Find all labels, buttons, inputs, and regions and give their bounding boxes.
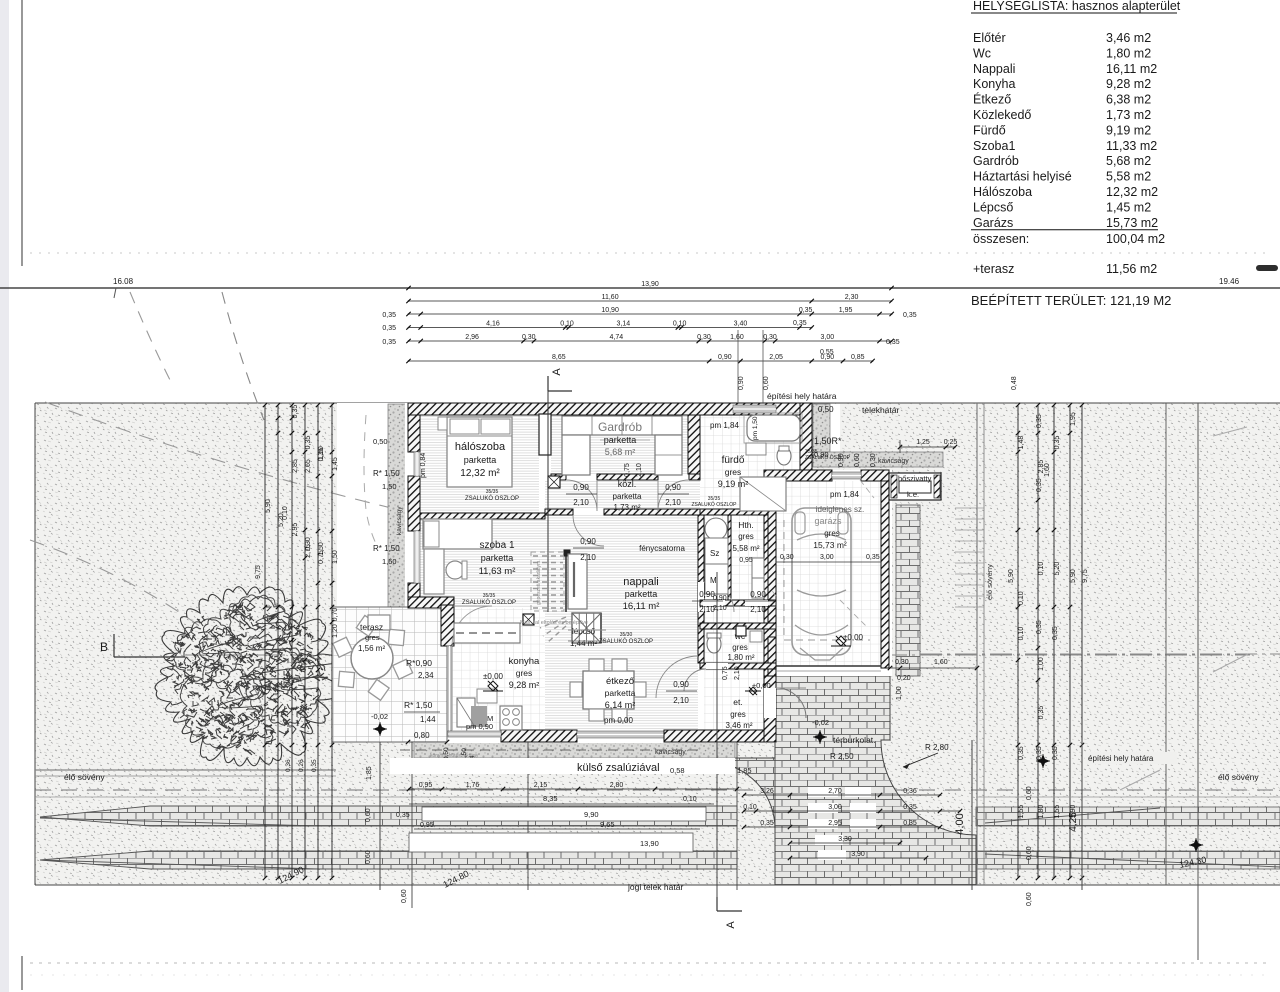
svg-text:kavicságy: kavicságy xyxy=(878,458,909,465)
svg-text:élő sövény: élő sövény xyxy=(1218,772,1259,782)
svg-text:5,90: 5,90 xyxy=(1070,569,1077,583)
svg-text:0,35: 0,35 xyxy=(1052,746,1059,760)
svg-text:fénycsatorna: fénycsatorna xyxy=(639,544,685,553)
svg-text:k.e.: k.e. xyxy=(907,490,919,499)
svg-text:parketta: parketta xyxy=(481,553,514,563)
svg-text:Fürdő: Fürdő xyxy=(973,123,1006,137)
svg-text:2,95: 2,95 xyxy=(828,820,842,827)
svg-text:parketta: parketta xyxy=(464,455,497,465)
svg-text:R* 1,50: R* 1,50 xyxy=(373,544,400,553)
svg-text:0,95: 0,95 xyxy=(739,557,753,564)
svg-text:0,10: 0,10 xyxy=(1018,591,1025,605)
svg-text:2,10: 2,10 xyxy=(713,605,727,612)
svg-text:0,35: 0,35 xyxy=(799,307,813,314)
svg-text:4,74: 4,74 xyxy=(610,334,624,341)
svg-text:3,26: 3,26 xyxy=(760,788,774,795)
svg-text:2,95: 2,95 xyxy=(292,523,299,537)
svg-text:2,10: 2,10 xyxy=(673,696,689,705)
svg-text:11,60: 11,60 xyxy=(602,294,619,301)
svg-text:1,56 m²: 1,56 m² xyxy=(358,644,385,653)
svg-text:0,90: 0,90 xyxy=(580,537,596,546)
svg-text:0,60: 0,60 xyxy=(763,376,770,390)
svg-text:0,75: 0,75 xyxy=(722,666,729,680)
svg-text:0,30: 0,30 xyxy=(697,334,711,341)
svg-text:étkező: étkező xyxy=(606,676,634,687)
svg-text:0,10: 0,10 xyxy=(282,506,289,520)
svg-text:1,73 m²: 1,73 m² xyxy=(613,503,640,512)
svg-text:0,60: 0,60 xyxy=(1026,786,1033,800)
svg-text:gres: gres xyxy=(824,529,840,538)
svg-text:2,10: 2,10 xyxy=(734,666,741,680)
svg-text:0,90: 0,90 xyxy=(718,354,732,361)
svg-text:8,35: 8,35 xyxy=(543,794,558,803)
svg-text:Háztartási helyisé: Háztartási helyisé xyxy=(973,170,1072,184)
svg-text:jogi telek határ: jogi telek határ xyxy=(627,882,683,892)
svg-text:A: A xyxy=(551,368,563,376)
svg-text:kavicságy: kavicságy xyxy=(396,506,403,535)
svg-text:0,90: 0,90 xyxy=(665,483,681,492)
svg-text:pm 1,50: pm 1,50 xyxy=(752,416,759,440)
svg-text:0,30: 0,30 xyxy=(870,453,877,467)
svg-text:2,10: 2,10 xyxy=(750,605,766,614)
svg-text:2,85: 2,85 xyxy=(292,459,299,473)
svg-text:2,10: 2,10 xyxy=(665,498,681,507)
svg-text:0,60: 0,60 xyxy=(1026,892,1033,906)
svg-text:1,95: 1,95 xyxy=(1070,412,1077,426)
svg-text:1,76: 1,76 xyxy=(466,782,480,789)
svg-text:0,10: 0,10 xyxy=(673,321,687,328)
svg-text:0,10: 0,10 xyxy=(683,796,697,803)
svg-text:0,60: 0,60 xyxy=(854,453,861,467)
svg-text:BEÉPÍTETT TERÜLET: 121,19 M2: BEÉPÍTETT TERÜLET: 121,19 M2 xyxy=(971,293,1171,308)
svg-text:gépészeti/akadálym.: gépészeti/akadálym. xyxy=(536,559,542,605)
svg-text:2,30: 2,30 xyxy=(845,294,859,301)
svg-text:élő sövény: élő sövény xyxy=(985,564,994,600)
svg-text:0,48: 0,48 xyxy=(1011,376,1018,390)
svg-text:35/30: 35/30 xyxy=(620,632,633,638)
svg-text:2,70: 2,70 xyxy=(828,788,842,795)
svg-text:5,58 m²: 5,58 m² xyxy=(732,544,759,553)
svg-text:Konyha: Konyha xyxy=(973,77,1015,91)
svg-text:Wc: Wc xyxy=(973,46,991,60)
svg-text:0,10: 0,10 xyxy=(1018,627,1025,641)
svg-text:0,60: 0,60 xyxy=(401,889,408,903)
svg-text:9,28 m²: 9,28 m² xyxy=(509,680,540,690)
svg-text:nappali: nappali xyxy=(623,576,658,588)
svg-text:3,00: 3,00 xyxy=(820,554,834,561)
svg-text:4,00: 4,00 xyxy=(954,813,966,834)
svg-text:1,48: 1,48 xyxy=(1018,436,1025,450)
svg-text:0,60: 0,60 xyxy=(365,808,372,822)
svg-text:0,30: 0,30 xyxy=(522,334,536,341)
svg-text:1,00: 1,00 xyxy=(1038,657,1045,671)
svg-text:0,35: 0,35 xyxy=(793,320,807,327)
svg-text:0,90: 0,90 xyxy=(821,354,835,361)
svg-text:0,85: 0,85 xyxy=(851,354,865,361)
svg-text:1,45 m2: 1,45 m2 xyxy=(1106,200,1151,214)
svg-text:pm 0,90: pm 0,90 xyxy=(466,722,493,731)
svg-text:0,35: 0,35 xyxy=(760,820,774,827)
svg-text:0,35: 0,35 xyxy=(1052,626,1059,640)
svg-text:2,34: 2,34 xyxy=(418,671,434,680)
svg-text:0,58: 0,58 xyxy=(670,766,685,775)
svg-text:HELYSÉGLISTA: hasznos alapter: HELYSÉGLISTA: hasznos alapterület xyxy=(973,0,1181,13)
svg-text:hőszivatty: hőszivatty xyxy=(898,474,932,483)
svg-text:4,16: 4,16 xyxy=(486,321,500,328)
svg-text:10,90: 10,90 xyxy=(601,307,619,314)
svg-text:9,75: 9,75 xyxy=(1082,569,1089,583)
svg-text:0,35: 0,35 xyxy=(903,820,917,827)
svg-text:et.: et. xyxy=(733,697,742,707)
svg-text:2,80: 2,80 xyxy=(610,782,624,789)
svg-text:100,04 m2: 100,04 m2 xyxy=(1106,232,1165,246)
svg-text:6,14 m²: 6,14 m² xyxy=(605,700,636,710)
svg-text:Előtér: Előtér xyxy=(973,31,1006,45)
svg-text:16,11 m²: 16,11 m² xyxy=(623,601,660,612)
svg-text:15,73 m²: 15,73 m² xyxy=(813,540,847,550)
svg-text:0,75: 0,75 xyxy=(624,463,631,477)
svg-text:5,20: 5,20 xyxy=(1054,562,1061,576)
svg-text:0,35: 0,35 xyxy=(1036,478,1043,492)
svg-text:0,95: 0,95 xyxy=(420,822,434,829)
svg-text:0,35: 0,35 xyxy=(866,554,880,561)
svg-text:9,19 m²: 9,19 m² xyxy=(718,479,749,489)
svg-text:5,68 m2: 5,68 m2 xyxy=(1106,154,1151,168)
svg-text:8,65: 8,65 xyxy=(552,354,566,361)
svg-text:Max. fal eltolás és belépővé: Max. fal eltolás és belépővé xyxy=(520,620,588,626)
svg-text:0,35: 0,35 xyxy=(292,405,299,419)
svg-text:0,35: 0,35 xyxy=(396,812,410,819)
svg-text:5,90: 5,90 xyxy=(1008,569,1015,583)
svg-text:Sz: Sz xyxy=(710,549,719,558)
svg-text:külső zsalúziával: külső zsalúziával xyxy=(577,762,660,774)
svg-text:gres: gres xyxy=(725,467,742,477)
svg-text:lépcső: lépcső xyxy=(572,627,596,636)
svg-text:0,30: 0,30 xyxy=(895,659,909,666)
svg-text:3,90: 3,90 xyxy=(851,851,865,858)
svg-text:0,20: 0,20 xyxy=(897,675,911,682)
svg-text:konyha: konyha xyxy=(509,656,540,667)
svg-text:0,80: 0,80 xyxy=(414,731,430,740)
svg-text:0,26: 0,26 xyxy=(298,759,305,772)
svg-text:gres: gres xyxy=(732,643,748,652)
svg-text:parketta: parketta xyxy=(605,688,636,698)
svg-text:R 2,50: R 2,50 xyxy=(830,752,854,761)
svg-text:0,35: 0,35 xyxy=(1036,620,1043,634)
svg-text:1,50: 1,50 xyxy=(318,542,325,556)
svg-text:összesen:: összesen: xyxy=(973,232,1029,246)
svg-text:16.08: 16.08 xyxy=(113,277,134,286)
svg-text:0,35: 0,35 xyxy=(903,312,917,319)
svg-text:fürdő: fürdő xyxy=(722,455,745,466)
svg-text:0,35: 0,35 xyxy=(305,436,312,450)
svg-text:0,10: 0,10 xyxy=(743,804,757,811)
svg-text:1,80 m2: 1,80 m2 xyxy=(1106,46,1151,60)
svg-text:0,35: 0,35 xyxy=(1036,414,1043,428)
svg-text:1,00: 1,00 xyxy=(896,686,903,700)
svg-text:0,35: 0,35 xyxy=(886,339,900,346)
svg-text:19.46: 19.46 xyxy=(1219,277,1240,286)
svg-text:M: M xyxy=(710,576,717,585)
svg-text:1,60: 1,60 xyxy=(730,334,744,341)
svg-text:0,35: 0,35 xyxy=(1054,436,1061,450)
svg-text:9,19 m2: 9,19 m2 xyxy=(1106,123,1151,137)
svg-text:1,80 m²: 1,80 m² xyxy=(727,653,754,662)
svg-text:gres: gres xyxy=(730,710,746,719)
svg-text:pm 0,84: pm 0,84 xyxy=(420,453,427,478)
svg-text:3,00: 3,00 xyxy=(821,334,835,341)
svg-text:0,30: 0,30 xyxy=(763,334,777,341)
svg-text:térburkolat.: térburkolat. xyxy=(833,735,876,745)
svg-text:2,75: 2,75 xyxy=(305,544,312,558)
svg-text:parketta: parketta xyxy=(604,435,637,445)
svg-text:1,44 m²: 1,44 m² xyxy=(570,639,597,648)
svg-text:35/35: 35/35 xyxy=(483,593,496,599)
svg-text:R* 1,50: R* 1,50 xyxy=(373,469,400,478)
svg-text:0,35: 0,35 xyxy=(1038,706,1045,720)
svg-text:ZSALUKÓ OSZLOP: ZSALUKÓ OSZLOP xyxy=(462,599,516,606)
svg-text:1,44: 1,44 xyxy=(420,715,436,724)
svg-text:3,30: 3,30 xyxy=(838,836,852,843)
svg-text:0,90: 0,90 xyxy=(838,453,845,467)
svg-text:Gardrób: Gardrób xyxy=(973,154,1019,168)
svg-text:1,60: 1,60 xyxy=(1044,463,1051,477)
svg-text:0,36: 0,36 xyxy=(903,788,917,795)
svg-text:ZSALUKÓ OSZLOP: ZSALUKÓ OSZLOP xyxy=(691,501,737,508)
svg-text:1,50: 1,50 xyxy=(382,557,397,566)
svg-text:0,60: 0,60 xyxy=(1026,846,1033,860)
svg-text:11,56 m2: 11,56 m2 xyxy=(1106,262,1157,276)
svg-text:0,35: 0,35 xyxy=(903,804,917,811)
svg-text:0,30: 0,30 xyxy=(780,554,794,561)
svg-text:1,20: 1,20 xyxy=(332,624,339,638)
svg-text:3,46 m2: 3,46 m2 xyxy=(1106,31,1151,45)
svg-text:0,35: 0,35 xyxy=(382,325,396,332)
svg-text:pm 1,84: pm 1,84 xyxy=(710,421,739,430)
svg-text:Szoba1: Szoba1 xyxy=(973,139,1015,153)
svg-text:0,95: 0,95 xyxy=(419,782,433,789)
svg-text:0,10: 0,10 xyxy=(560,321,574,328)
svg-text:1,85: 1,85 xyxy=(737,766,752,775)
svg-text:A: A xyxy=(725,921,737,929)
svg-text:1,25: 1,25 xyxy=(916,439,930,446)
svg-text:3,00: 3,00 xyxy=(828,804,842,811)
svg-text:2,96: 2,96 xyxy=(465,334,479,341)
svg-text:R*0,90: R*0,90 xyxy=(406,658,432,668)
svg-text:0,10: 0,10 xyxy=(1038,562,1045,576)
svg-text:telekhatár: telekhatár xyxy=(862,405,899,415)
svg-text:1,85: 1,85 xyxy=(366,766,373,780)
svg-text:Lépcső: Lépcső xyxy=(973,200,1013,214)
svg-text:3,46 m²: 3,46 m² xyxy=(725,721,752,730)
svg-text:építési hely határa: építési hely határa xyxy=(1088,754,1154,763)
svg-text:-0,02: -0,02 xyxy=(812,718,829,727)
svg-text:ZSALUKÓ OSZLOP: ZSALUKÓ OSZLOP xyxy=(465,495,519,502)
svg-text:35/35: 35/35 xyxy=(708,496,721,502)
svg-text:építési hely határa: építési hely határa xyxy=(767,391,837,401)
svg-text:1,95: 1,95 xyxy=(839,307,853,314)
svg-text:parketta: parketta xyxy=(613,492,642,501)
svg-text:gres: gres xyxy=(738,532,754,541)
svg-text:élő sövény: élő sövény xyxy=(64,772,105,782)
svg-text:4,25: 4,25 xyxy=(1068,812,1079,832)
svg-text:9,28 m2: 9,28 m2 xyxy=(1106,77,1151,91)
svg-text:1,55: 1,55 xyxy=(1018,805,1025,819)
svg-text:12,32 m²: 12,32 m² xyxy=(460,468,500,479)
svg-text:0,35: 0,35 xyxy=(1018,746,1025,760)
svg-text:R 2,80: R 2,80 xyxy=(925,743,949,752)
svg-text:3,14: 3,14 xyxy=(617,321,631,328)
svg-text:R* 1,50: R* 1,50 xyxy=(404,700,433,710)
svg-text:gres: gres xyxy=(516,668,533,678)
svg-text:parketta: parketta xyxy=(625,589,658,599)
svg-text:ideiglenes sz.: ideiglenes sz. xyxy=(816,505,864,514)
svg-text:0,90: 0,90 xyxy=(573,483,589,492)
svg-text:2,05: 2,05 xyxy=(769,354,783,361)
svg-text:13,90: 13,90 xyxy=(640,839,659,848)
svg-text:5,90: 5,90 xyxy=(265,499,272,513)
svg-text:terasz: terasz xyxy=(360,622,383,632)
svg-text:2,10: 2,10 xyxy=(699,605,715,614)
svg-text:0,90: 0,90 xyxy=(738,376,745,390)
svg-text:ZSALUKÓ OSZLOP: ZSALUKÓ OSZLOP xyxy=(599,638,653,645)
svg-text:0,35: 0,35 xyxy=(311,759,318,772)
svg-text:2,15: 2,15 xyxy=(534,782,548,789)
svg-text:Étkező: Étkező xyxy=(973,92,1011,107)
svg-text:2,65: 2,65 xyxy=(305,459,312,473)
svg-text:szoba 1: szoba 1 xyxy=(479,540,514,551)
svg-text:0,60: 0,60 xyxy=(365,850,372,864)
svg-text:0,25: 0,25 xyxy=(944,439,958,446)
svg-text:Közlekedő: Közlekedő xyxy=(973,108,1031,122)
svg-text:2,10: 2,10 xyxy=(636,463,643,477)
svg-text:11,63 m²: 11,63 m² xyxy=(479,566,516,577)
svg-text:-0,02: -0,02 xyxy=(371,712,388,721)
svg-text:0,36: 0,36 xyxy=(285,759,292,772)
svg-text:1,50R*: 1,50R* xyxy=(814,436,842,446)
svg-text:0,90: 0,90 xyxy=(750,590,766,599)
svg-text:+terasz: +terasz xyxy=(973,262,1014,276)
svg-text:garázs: garázs xyxy=(814,516,842,526)
svg-text:0,90: 0,90 xyxy=(673,680,689,689)
svg-text:pm 0,00: pm 0,00 xyxy=(604,716,633,725)
svg-text:Gardrób: Gardrób xyxy=(598,420,642,434)
svg-text:pm 1,84: pm 1,84 xyxy=(830,490,859,499)
svg-text:12,32 m2: 12,32 m2 xyxy=(1106,185,1158,199)
svg-text:11,33 m2: 11,33 m2 xyxy=(1106,139,1157,153)
svg-text:Nappali: Nappali xyxy=(973,62,1015,76)
svg-text:0,90: 0,90 xyxy=(814,450,829,459)
svg-text:0,70: 0,70 xyxy=(332,608,339,622)
svg-text:0,35: 0,35 xyxy=(382,312,396,319)
svg-text:Hth.: Hth. xyxy=(738,520,754,530)
svg-text:6,38 m2: 6,38 m2 xyxy=(1106,93,1151,107)
svg-text:0,50: 0,50 xyxy=(373,437,388,446)
svg-text:5,58 m2: 5,58 m2 xyxy=(1106,170,1151,184)
svg-text:B: B xyxy=(100,640,108,654)
svg-text:M: M xyxy=(487,714,493,723)
svg-text:9,75: 9,75 xyxy=(255,565,262,579)
svg-text:közl.: közl. xyxy=(618,479,637,489)
svg-text:1,50: 1,50 xyxy=(318,446,325,460)
svg-text:9,90: 9,90 xyxy=(584,810,599,819)
svg-text:16,11 m2: 16,11 m2 xyxy=(1106,62,1157,76)
svg-text:1,45: 1,45 xyxy=(332,457,339,471)
svg-text:±0,00: ±0,00 xyxy=(483,672,504,681)
svg-text:0,35: 0,35 xyxy=(382,339,396,346)
svg-text:1,50: 1,50 xyxy=(332,550,339,564)
svg-text:2,10: 2,10 xyxy=(573,498,589,507)
svg-text:1,55: 1,55 xyxy=(1054,805,1061,819)
svg-text:9,65: 9,65 xyxy=(600,820,615,829)
svg-text:35/35: 35/35 xyxy=(486,489,499,495)
svg-text:0,90: 0,90 xyxy=(699,590,715,599)
svg-text:hálószoba: hálószoba xyxy=(455,441,506,453)
svg-text:2,10: 2,10 xyxy=(580,553,596,562)
svg-text:0,50: 0,50 xyxy=(818,405,834,414)
svg-text:13,90: 13,90 xyxy=(641,281,659,288)
svg-text:5,68 m²: 5,68 m² xyxy=(605,447,636,457)
svg-text:gres: gres xyxy=(365,633,380,642)
svg-text:3,40: 3,40 xyxy=(734,321,748,328)
svg-text:1,73 m2: 1,73 m2 xyxy=(1106,108,1151,122)
svg-text:Hálószoba: Hálószoba xyxy=(973,185,1032,199)
svg-text:1,60: 1,60 xyxy=(934,659,948,666)
svg-text:1,80: 1,80 xyxy=(1038,805,1045,819)
svg-text:15,73 m2: 15,73 m2 xyxy=(1106,216,1158,230)
svg-text:1,50: 1,50 xyxy=(382,482,397,491)
svg-text:Garázs: Garázs xyxy=(973,216,1013,230)
